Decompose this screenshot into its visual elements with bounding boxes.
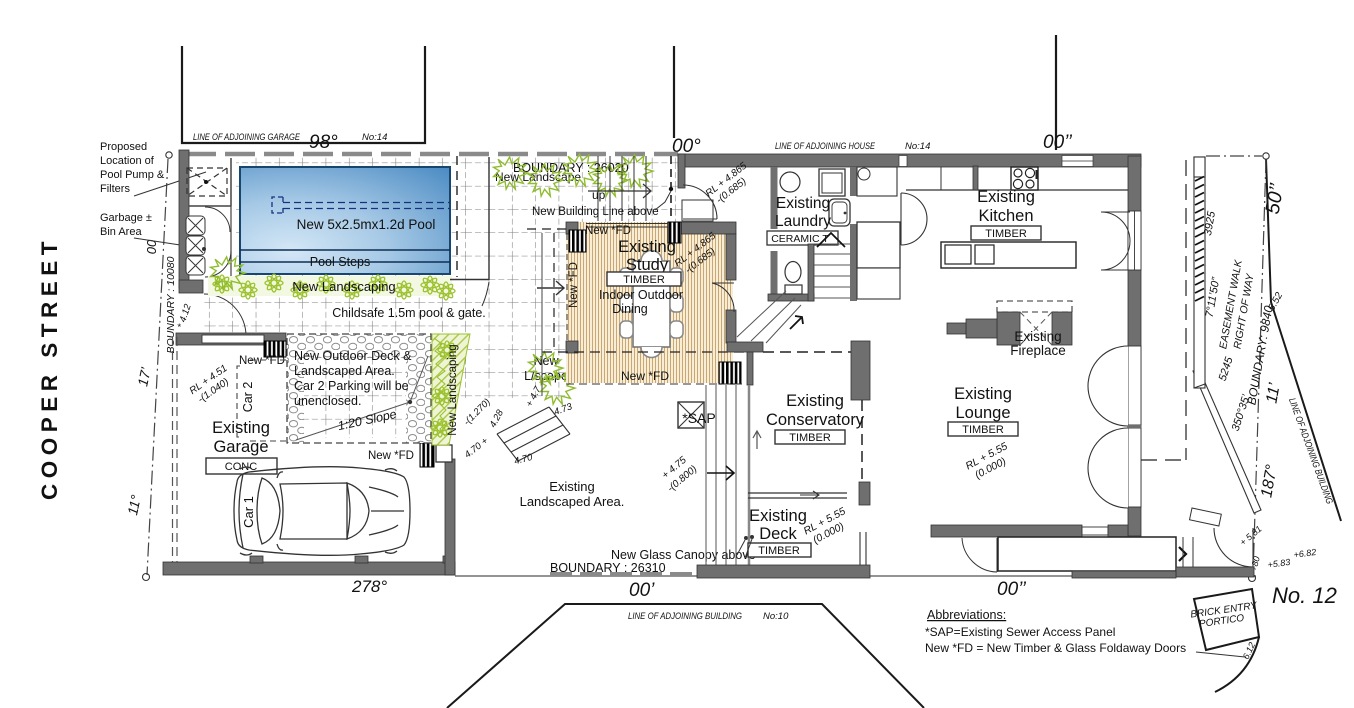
svg-text:New Landscaping: New Landscaping: [447, 344, 459, 435]
svg-text:New Glass Canopy above: New Glass Canopy above: [611, 548, 756, 562]
svg-text:Landscaped Area.: Landscaped Area.: [294, 364, 395, 378]
svg-text:New *FD: New *FD: [368, 450, 414, 462]
svg-text:New *FD: New *FD: [239, 355, 285, 367]
svg-text:*SAP=Existing Sewer Access Pan: *SAP=Existing Sewer Access Panel: [925, 625, 1115, 639]
svg-text:Car 2: Car 2: [241, 382, 255, 413]
svg-text:Car 2 Parking will be: Car 2 Parking will be: [294, 379, 409, 393]
svg-text:Existing: Existing: [549, 479, 595, 494]
svg-text:Kitchen: Kitchen: [978, 207, 1033, 225]
svg-text:New 5x2.5mx1.2d Pool: New 5x2.5mx1.2d Pool: [297, 217, 436, 232]
svg-text:New *FD: New *FD: [568, 262, 580, 308]
svg-text:00’: 00’: [629, 580, 655, 601]
svg-text:98°: 98°: [309, 132, 338, 153]
svg-text:Existing: Existing: [212, 419, 270, 437]
svg-text:unenclosed.: unenclosed.: [294, 394, 361, 408]
svg-text:*SAP: *SAP: [682, 410, 715, 426]
svg-text:Location of: Location of: [100, 155, 155, 167]
svg-text:Car 1: Car 1: [241, 496, 256, 528]
svg-text:LINE OF ADJOINING BUILDING: LINE OF ADJOINING BUILDING: [628, 611, 742, 622]
svg-text:Existing: Existing: [776, 195, 830, 212]
svg-text:Pool Pump &: Pool Pump &: [100, 169, 165, 181]
svg-text:No:14: No:14: [362, 132, 387, 143]
svg-text:Existing: Existing: [1014, 329, 1061, 344]
svg-text:Laundry: Laundry: [775, 213, 831, 230]
svg-text:Filters: Filters: [100, 183, 130, 195]
svg-text:Study: Study: [626, 256, 669, 274]
svg-text:Existing: Existing: [786, 392, 844, 410]
svg-text:New Landscaping: New Landscaping: [292, 279, 395, 294]
svg-text:00’’: 00’’: [997, 579, 1027, 600]
svg-text:Existing: Existing: [749, 507, 807, 525]
svg-text:TIMBER: TIMBER: [758, 545, 800, 557]
svg-text:Dining: Dining: [612, 302, 647, 316]
svg-text:No:14: No:14: [905, 141, 930, 152]
svg-text:BOUNDARY : 26310: BOUNDARY : 26310: [550, 561, 666, 575]
svg-text:COOPER STREET: COOPER STREET: [37, 236, 62, 500]
svg-text:Garage: Garage: [213, 438, 268, 456]
svg-text:Bin Area: Bin Area: [100, 226, 142, 238]
svg-text:Existing: Existing: [977, 188, 1035, 206]
svg-text:Existing: Existing: [954, 385, 1012, 403]
svg-text:278°: 278°: [351, 577, 387, 596]
svg-text:TIMBER: TIMBER: [789, 432, 831, 444]
svg-text:Landscaped Area.: Landscaped Area.: [520, 494, 625, 509]
svg-text:New *FD = New Timber & Glass F: New *FD = New Timber & Glass Foldaway Do…: [925, 641, 1186, 655]
svg-text:New Outdoor Deck &: New Outdoor Deck &: [294, 349, 412, 363]
svg-text:LINE OF ADJOINING HOUSE: LINE OF ADJOINING HOUSE: [775, 141, 876, 152]
svg-text:Fireplace: Fireplace: [1010, 343, 1066, 358]
svg-text:11’: 11’: [1263, 381, 1283, 404]
svg-text:TIMBER: TIMBER: [962, 424, 1004, 436]
svg-text:LINE OF ADJOINING GARAGE: LINE OF ADJOINING GARAGE: [193, 132, 301, 143]
svg-text:Conservatory: Conservatory: [766, 411, 865, 429]
svg-text:New *FD: New *FD: [621, 369, 669, 383]
svg-text:BOUNDARY : 10080: BOUNDARY : 10080: [165, 256, 177, 353]
svg-text:New Building Line above: New Building Line above: [532, 206, 659, 218]
svg-text:No:10: No:10: [763, 611, 789, 622]
svg-text:Proposed: Proposed: [100, 141, 147, 153]
svg-text:Childsafe 1.5m pool & gate.: Childsafe 1.5m pool & gate.: [332, 306, 486, 320]
svg-text:00’’: 00’’: [1043, 132, 1073, 153]
svg-text:Abbreviations:: Abbreviations:: [927, 608, 1006, 622]
svg-text:Garbage ±: Garbage ±: [100, 212, 152, 224]
svg-text:Deck: Deck: [759, 525, 797, 543]
svg-text:up: up: [592, 188, 606, 202]
svg-text:Lounge: Lounge: [955, 404, 1010, 422]
svg-text:Existing: Existing: [618, 238, 676, 256]
svg-text:TIMBER: TIMBER: [985, 228, 1027, 240]
svg-text:Indoor Outdoor: Indoor Outdoor: [599, 288, 683, 302]
svg-text:No. 12: No. 12: [1272, 583, 1337, 608]
svg-text:Pool Steps: Pool Steps: [310, 255, 370, 269]
svg-text:New *FD: New *FD: [585, 225, 631, 237]
svg-text:TIMBER: TIMBER: [623, 274, 665, 286]
